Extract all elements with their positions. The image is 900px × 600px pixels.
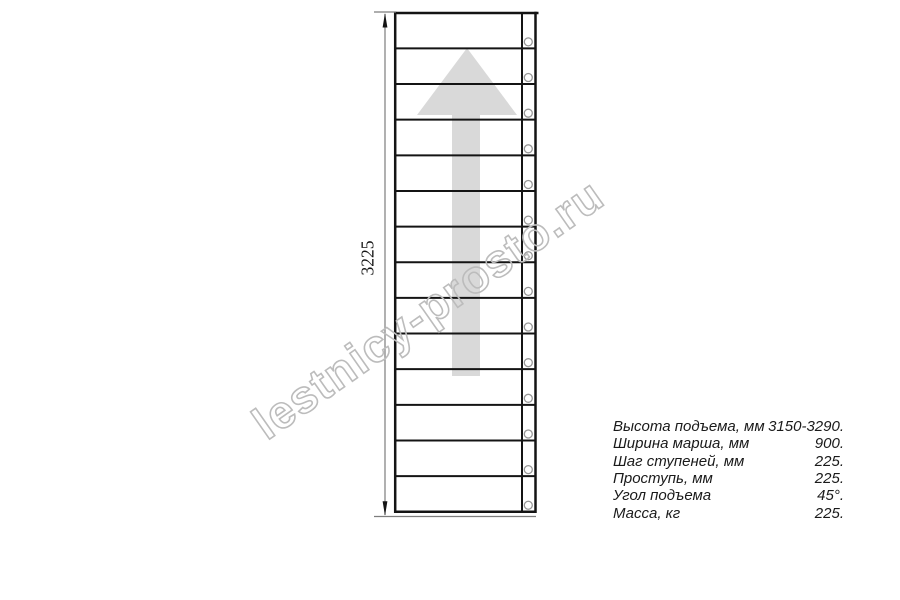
screw-icon: [524, 359, 532, 367]
screw-icon: [524, 394, 532, 402]
screw-icon: [524, 180, 532, 188]
screw-icon: [524, 466, 532, 474]
spec-row: Шаг ступеней, мм 225.: [613, 453, 844, 470]
spec-row: Масса, кг 225.: [613, 505, 844, 522]
spec-label: Высота подъема, мм: [613, 418, 765, 435]
spec-value: 225.: [815, 505, 844, 522]
screw-icon: [524, 74, 532, 82]
spec-row: Проступь, мм 225.: [613, 470, 844, 487]
screw-icon: [524, 430, 532, 438]
spec-label: Ширина марша, мм: [613, 435, 749, 452]
spec-label: Шаг ступеней, мм: [613, 453, 744, 470]
spec-value: 45°.: [817, 487, 844, 504]
dimension-arrow-bottom: [383, 501, 388, 516]
technical-drawing-page: 3225 lestnicy-prosto.ru Высота подъема, …: [0, 0, 900, 600]
screw-circles: [524, 38, 532, 509]
spec-label: Проступь, мм: [613, 470, 713, 487]
dimension-arrow-top: [383, 13, 388, 28]
spec-table: Высота подъема, мм 3150-3290. Ширина мар…: [613, 418, 844, 522]
screw-icon: [524, 287, 532, 295]
watermark-text: lestnicy-prosto.ru: [243, 168, 613, 449]
spec-row: Ширина марша, мм 900.: [613, 435, 844, 452]
spec-row: Угол подъема 45°.: [613, 487, 844, 504]
screw-icon: [524, 145, 532, 153]
screw-icon: [524, 501, 532, 509]
dimension-label: 3225: [358, 240, 378, 275]
spec-label: Масса, кг: [613, 505, 680, 522]
spec-label: Угол подъема: [613, 487, 711, 504]
screw-icon: [524, 323, 532, 331]
spec-value: 900.: [815, 435, 844, 452]
spec-row: Высота подъема, мм 3150-3290.: [613, 418, 844, 435]
spec-value: 225.: [815, 453, 844, 470]
screw-icon: [524, 38, 532, 46]
spec-value: 3150-3290.: [768, 418, 844, 435]
screw-icon: [524, 109, 532, 117]
spec-value: 225.: [815, 470, 844, 487]
